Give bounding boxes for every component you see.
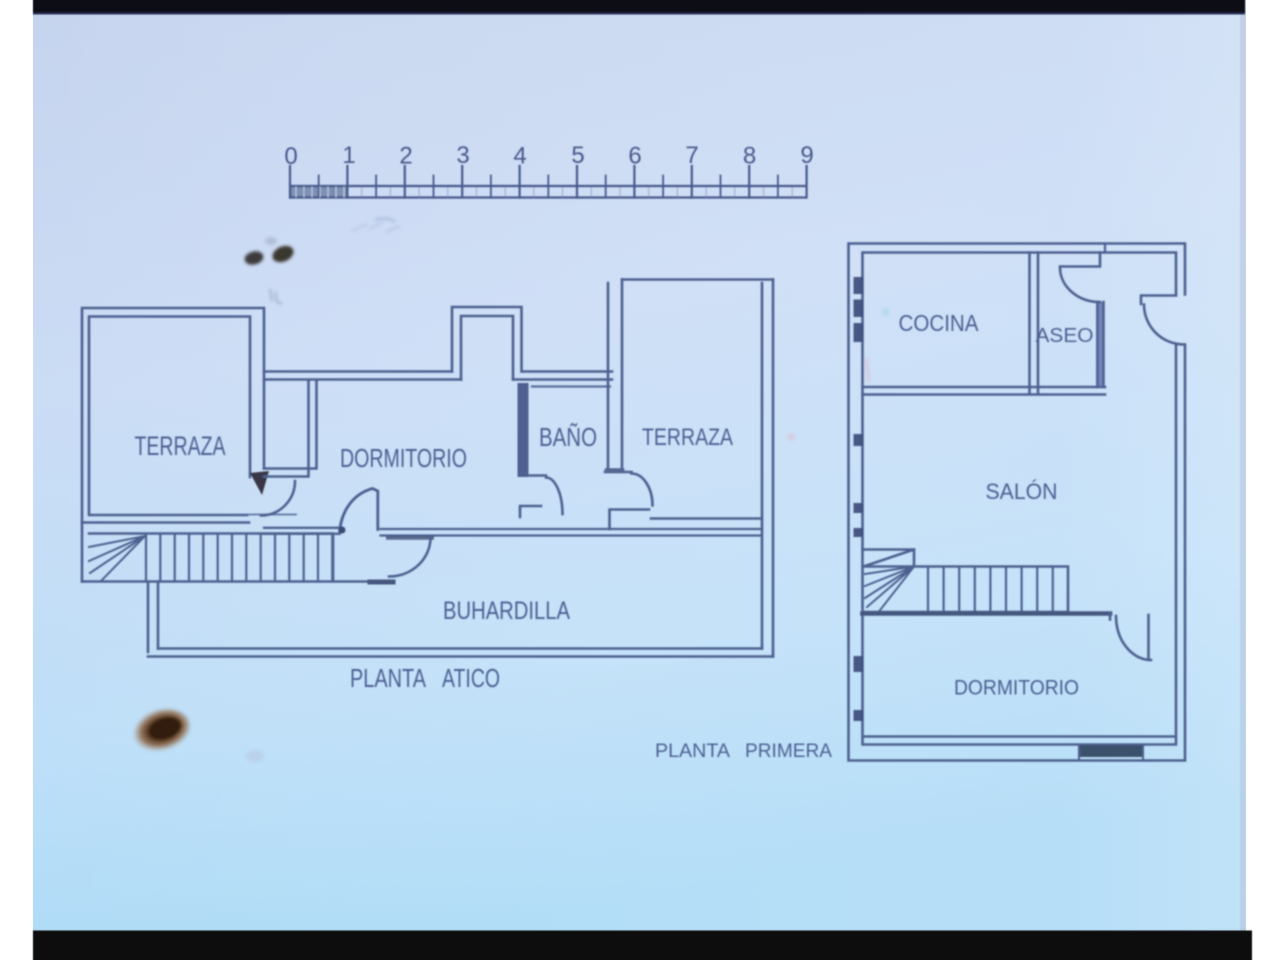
svg-text:DORMITORIO: DORMITORIO	[954, 677, 1079, 700]
svg-text:9: 9	[800, 142, 813, 169]
svg-text:6: 6	[628, 143, 641, 170]
svg-text:8: 8	[743, 143, 756, 170]
svg-text:SALÓN: SALÓN	[986, 479, 1058, 504]
svg-text:0: 0	[284, 143, 297, 170]
svg-text:3: 3	[456, 142, 469, 169]
svg-text:PLANTA: PLANTA	[350, 663, 427, 693]
svg-text:PRIMERA: PRIMERA	[745, 741, 832, 762]
svg-text:BUHARDILLA: BUHARDILLA	[443, 597, 570, 625]
svg-text:ASEO: ASEO	[1036, 325, 1094, 347]
svg-text:4: 4	[513, 143, 526, 170]
svg-text:1: 1	[342, 142, 355, 169]
svg-text:PLANTA: PLANTA	[655, 741, 730, 762]
svg-text:TERRAZA: TERRAZA	[642, 424, 733, 451]
svg-text:BAÑO: BAÑO	[539, 422, 597, 452]
svg-text:7: 7	[685, 142, 698, 169]
svg-text:ATICO: ATICO	[442, 663, 500, 693]
svg-text:TERRAZA: TERRAZA	[135, 431, 226, 461]
svg-text:COCINA: COCINA	[899, 310, 980, 336]
svg-text:DORMITORIO: DORMITORIO	[340, 443, 467, 473]
svg-text:5: 5	[571, 142, 584, 169]
svg-text:2: 2	[399, 143, 412, 170]
